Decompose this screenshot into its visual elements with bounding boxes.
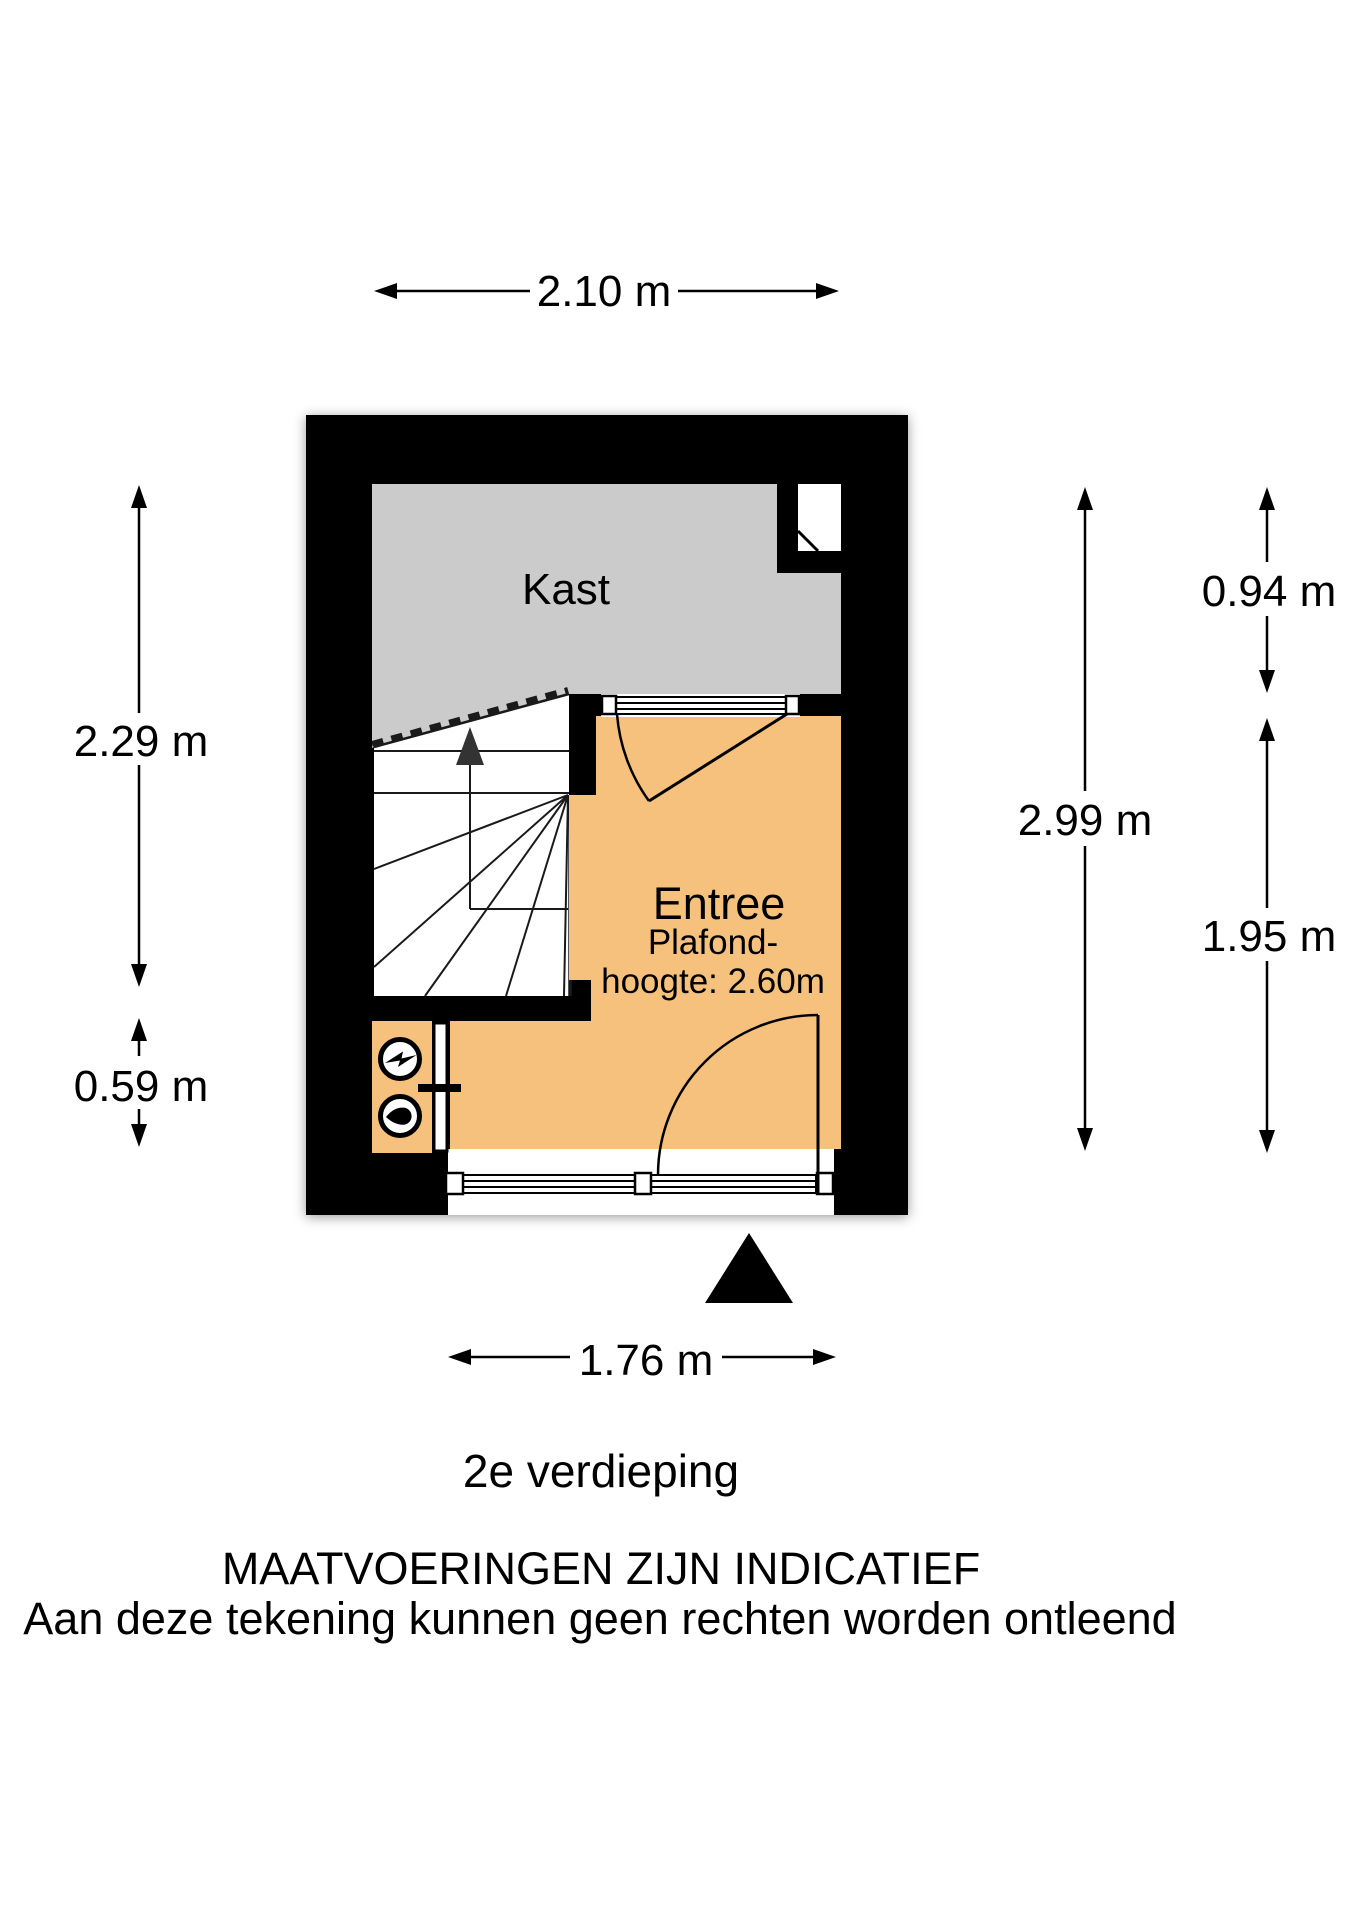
svg-text:0.94 m: 0.94 m (1202, 567, 1337, 616)
svg-text:Plafond-: Plafond- (648, 923, 778, 962)
svg-text:1.95 m: 1.95 m (1202, 912, 1337, 961)
svg-text:1.76 m: 1.76 m (579, 1336, 714, 1385)
svg-text:2.10 m: 2.10 m (537, 267, 672, 316)
svg-text:hoogte: 2.60m: hoogte: 2.60m (601, 962, 825, 1001)
svg-text:Kast: Kast (522, 565, 610, 614)
svg-text:0.59 m: 0.59 m (74, 1062, 209, 1111)
svg-text:Aan deze tekening kunnen geen: Aan deze tekening kunnen geen rechten wo… (23, 1593, 1176, 1644)
svg-text:2.99 m: 2.99 m (1018, 796, 1153, 845)
svg-text:MAATVOERINGEN ZIJN INDICATIEF: MAATVOERINGEN ZIJN INDICATIEF (222, 1543, 980, 1594)
svg-text:2.29 m: 2.29 m (74, 717, 209, 766)
svg-text:2e verdieping: 2e verdieping (463, 1445, 739, 1497)
svg-text:Entree: Entree (653, 878, 786, 929)
